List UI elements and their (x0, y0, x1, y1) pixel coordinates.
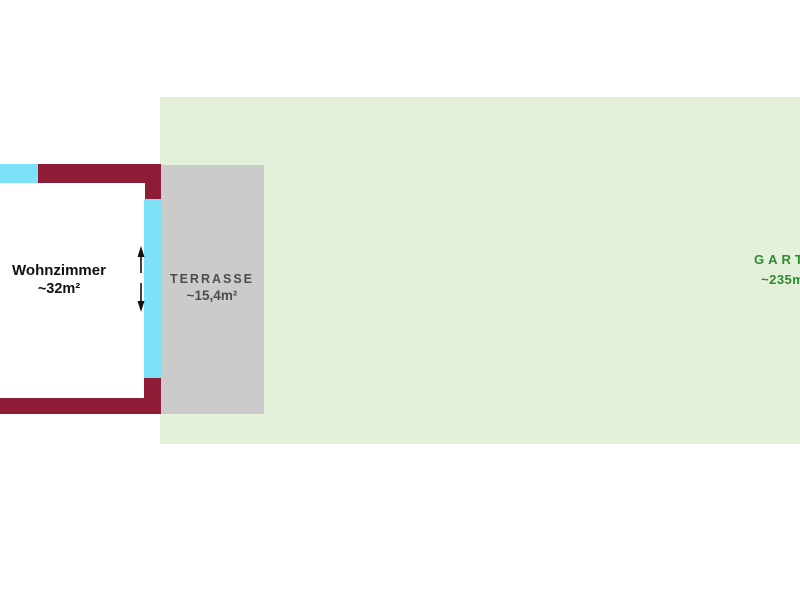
room-label: Wohnzimmer (0, 262, 118, 280)
floorplan: GARTEN ~235m² TERRASSE ~15,4m² Wohnzimme… (0, 0, 800, 600)
room-area: ~32m² (0, 281, 118, 298)
room-label-block: Wohnzimmer ~32m² (0, 262, 118, 298)
terrace-label: TERRASSE (160, 272, 264, 287)
terrace-label-block: TERRASSE ~15,4m² (160, 272, 264, 303)
wall-corner-top-right (145, 183, 161, 199)
garden-label-block: GARTEN ~235m² (754, 252, 800, 288)
terrace-region: TERRASSE ~15,4m² (160, 165, 264, 414)
wall-top (38, 164, 161, 183)
garden-label: GARTEN (754, 252, 800, 268)
sliding-door-arrows-icon (136, 245, 146, 315)
terrace-area: ~15,4m² (160, 288, 264, 303)
window-left-icon (0, 164, 38, 183)
glass-door-right (144, 199, 161, 378)
wall-bottom (0, 398, 161, 414)
garden-area: ~235m² (754, 272, 800, 288)
